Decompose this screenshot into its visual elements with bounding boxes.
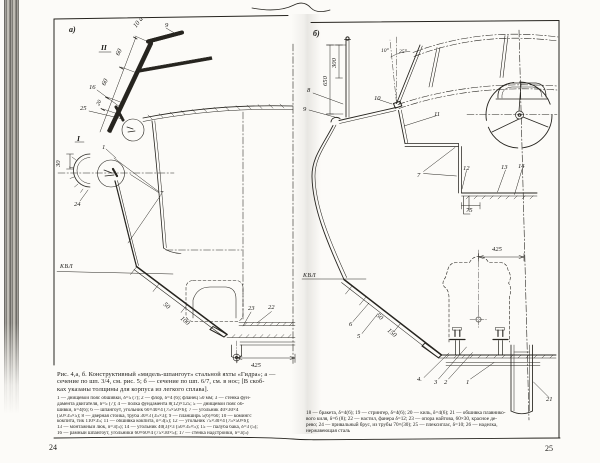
steering-wheel xyxy=(486,82,552,148)
engine-outline xyxy=(443,257,511,343)
callout-label: 9 xyxy=(165,22,169,29)
callout-label: 425 xyxy=(492,246,503,253)
callout-label: 1 xyxy=(466,379,469,386)
skeg-detail xyxy=(232,341,242,363)
callout-label: 10° xyxy=(381,47,390,54)
detail-circles xyxy=(98,119,145,187)
callout-label: 25° xyxy=(399,48,408,55)
callout-label: 150 xyxy=(386,327,399,339)
sole-and-floor xyxy=(227,323,295,346)
diagram-a-labels: а)II910 а6060201625I130247КВЛ50100232242… xyxy=(55,15,275,369)
callout-label: 6 xyxy=(349,321,353,328)
windshield-angle-fan xyxy=(390,37,422,108)
text-line: сечение по шп. 3/4, см. рис. 5; б — сече… xyxy=(57,378,305,385)
legend-left-page: 1 — днищевой пояс обшивки, δ=5 (7); 2 — … xyxy=(57,396,305,437)
callout-label: 60 xyxy=(115,47,124,57)
callout-label: 20 xyxy=(95,99,103,107)
callout-label: 50 xyxy=(162,301,172,311)
deck-beam-curve xyxy=(143,104,293,122)
figure-drawing: а)II910 а6060201625I130247КВЛ50100232242… xyxy=(0,0,600,463)
berth-outline xyxy=(186,281,243,322)
callout-label: 4. xyxy=(417,376,422,383)
callout-label: а) xyxy=(69,25,76,34)
page-number-right: 25 xyxy=(545,444,553,453)
diagram-a-section xyxy=(57,28,295,364)
callout-label: 3 xyxy=(433,379,438,386)
figure-caption: Рис. 4,а, б. Конструктивный «мидель-шпан… xyxy=(57,371,305,393)
callout-label: 24 xyxy=(74,201,81,208)
callout-label: 650 xyxy=(322,75,329,86)
callout-label: 21 xyxy=(546,396,553,403)
text-line: Рис. 4,а, б. Конструктивный «мидель-шпан… xyxy=(57,371,305,378)
callout-label: 22 xyxy=(268,304,275,311)
callout-label: 11 xyxy=(434,111,440,118)
callout-label: 2 xyxy=(444,379,448,386)
diagram-b-section xyxy=(302,30,558,420)
callout-label: 8 xyxy=(307,87,311,94)
callout-label: 5 xyxy=(357,333,361,340)
stanchion-post xyxy=(327,37,351,117)
callout-label: 1 xyxy=(102,144,105,151)
callout-label: КВЛ xyxy=(302,273,316,279)
hull-plating xyxy=(115,181,227,338)
callout-label: 7 xyxy=(160,190,164,197)
callout-label: I xyxy=(76,134,81,143)
callout-label: 425 xyxy=(251,362,262,369)
callout-label: КВЛ xyxy=(59,264,73,270)
callout-label: 75 xyxy=(466,207,473,214)
callout-label: 13 xyxy=(501,164,508,171)
callout-label: 10 xyxy=(374,95,381,102)
callout-label: 12 xyxy=(463,165,470,172)
text-line: 16 — рамный шпангоут, угольники 60×60×4 … xyxy=(57,431,305,437)
callout-label: 23 xyxy=(248,305,255,312)
legend-right-page: 18 — бракета, δ=4(6); 19 — стрингер, δ=4… xyxy=(306,410,560,434)
callout-label: 25 xyxy=(80,105,87,112)
callout-label: 300 xyxy=(331,57,338,69)
hull-plating-b xyxy=(302,125,442,358)
cockpit-steps xyxy=(399,110,538,214)
callout-label: 16 xyxy=(89,84,96,91)
callout-label: II xyxy=(100,43,108,52)
callout-label: 30 xyxy=(55,160,62,168)
callout-label: 60 xyxy=(101,77,110,87)
callout-label: 14 xyxy=(518,163,525,170)
page-number-left: 24 xyxy=(49,443,57,452)
book-spread-scan: а)II910 а6060201625I130247КВЛ50100232242… xyxy=(0,0,600,463)
callout-label: б) xyxy=(313,29,320,38)
callout-label: 100 xyxy=(179,315,192,327)
superstructure-outline xyxy=(398,34,558,108)
callout-label: 7 xyxy=(417,172,421,179)
callout-label: 9 xyxy=(303,106,307,113)
floor-and-engine-bed xyxy=(439,328,557,366)
text-line: ках указаны толщины для корпуса из легко… xyxy=(57,386,305,393)
text-line: нержавеющая сталь xyxy=(306,428,560,434)
callout-label: 50 xyxy=(375,312,385,322)
